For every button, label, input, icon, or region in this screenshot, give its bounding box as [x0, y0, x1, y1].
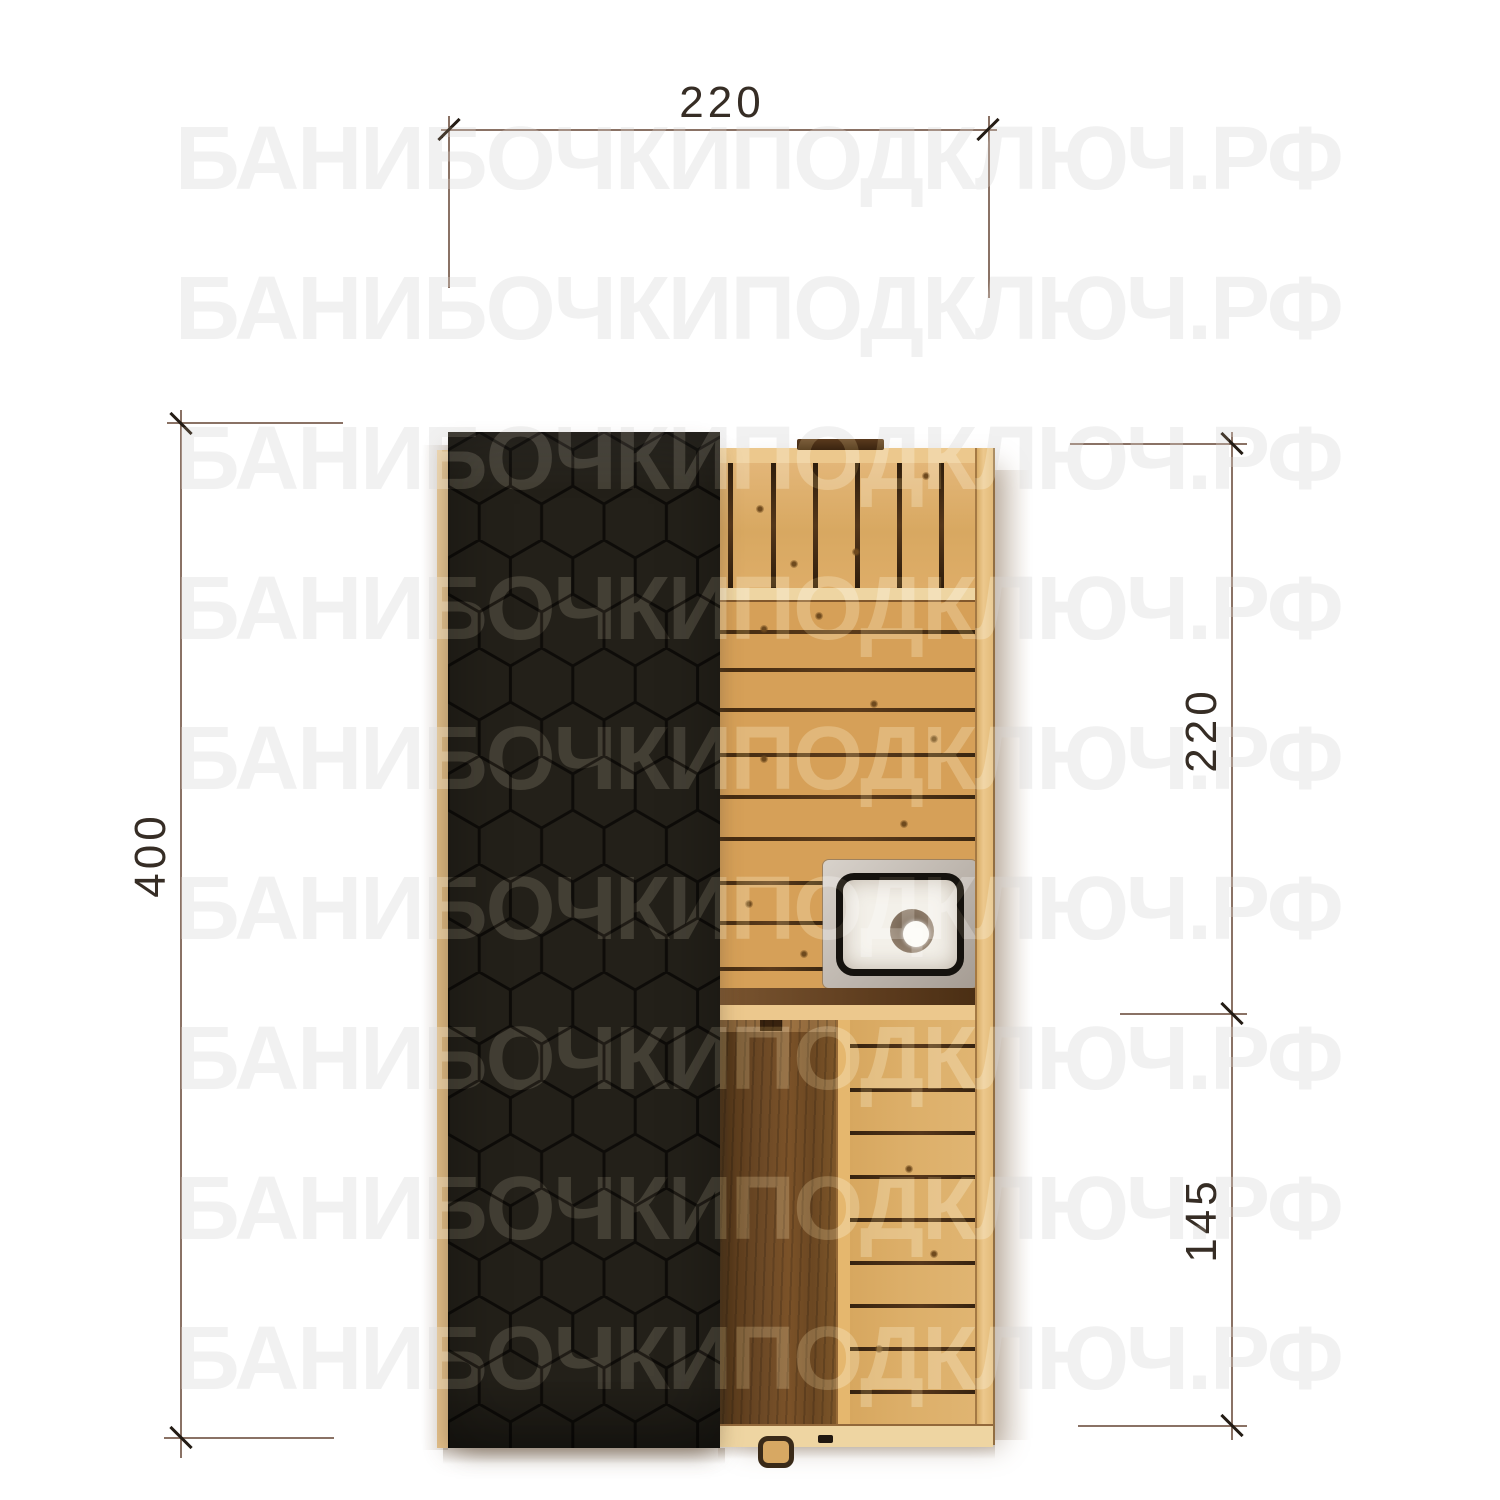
door-edge: [718, 1020, 836, 1032]
extension-line-top-right: [988, 116, 990, 298]
watermark-row: БАНИБОЧКИПОДКЛЮЧ.РФ: [175, 264, 1342, 354]
sink-drain: [890, 909, 934, 953]
dimension-line-left: [180, 410, 182, 1458]
wood-knot: [930, 735, 938, 743]
slat-gap: [939, 463, 944, 588]
slat-gap: [850, 1088, 978, 1092]
slat-gap: [850, 1261, 978, 1265]
slat-gap: [855, 463, 860, 588]
wood-knot: [760, 625, 768, 633]
lower-deck-slats: [850, 1020, 978, 1424]
wood-knot: [756, 505, 764, 513]
wood-knot: [815, 612, 823, 620]
wood-knot: [905, 1165, 913, 1173]
slat-gap: [850, 1044, 978, 1048]
sink-basin: [836, 873, 964, 976]
plank-gap: [718, 921, 823, 925]
plank-gap: [718, 795, 977, 799]
wood-knot: [790, 560, 798, 568]
building-shadow-right: [995, 470, 1031, 1440]
entry-door-top-view: [718, 1020, 836, 1424]
wood-knot: [930, 1250, 938, 1258]
slat-gap: [850, 1304, 978, 1308]
slat-gap: [850, 1175, 978, 1179]
door-hinge: [760, 1020, 782, 1031]
extension-line-left-top: [167, 422, 343, 424]
wood-knot: [875, 1345, 883, 1353]
dimension-label-left-height: 400: [126, 812, 176, 897]
right-wall: [975, 448, 993, 1445]
slat-gap: [850, 1218, 978, 1222]
sink: [823, 860, 977, 988]
wood-knot: [900, 820, 908, 828]
sink-drain-hole: [903, 921, 929, 947]
dimension-label-right-lower: 145: [1177, 1177, 1227, 1262]
wood-knot: [760, 755, 768, 763]
slat-gap: [850, 1347, 978, 1351]
wood-knot: [800, 950, 808, 958]
plank-gap: [718, 837, 977, 841]
slat-gap: [813, 463, 818, 588]
slat-gap: [728, 463, 733, 588]
dimension-line-top: [441, 129, 997, 131]
wood-knot: [922, 472, 930, 480]
plank-gap: [718, 967, 823, 971]
dimension-label-right-upper: 220: [1177, 687, 1227, 772]
wood-knot: [852, 548, 860, 556]
plank-gap: [718, 668, 977, 672]
wood-knot: [745, 900, 753, 908]
plank-gap: [718, 708, 977, 712]
extension-line-right-bottom: [1078, 1425, 1247, 1427]
plank-gap: [718, 881, 823, 885]
under-counter-band: [718, 988, 993, 1005]
extension-line-top-left: [448, 116, 450, 288]
dimension-line-right: [1231, 432, 1233, 1440]
bench-slats: [718, 463, 977, 588]
sauna-plan-canvas: БАНИБОЧКИПОДКЛЮЧ.РФБАНИБОЧКИПОДКЛЮЧ.РФБА…: [0, 0, 1500, 1500]
slat-gap: [850, 1131, 978, 1135]
extension-line-right-middle: [1120, 1013, 1247, 1015]
door-handle: [758, 1436, 794, 1468]
dimension-label-top-width: 220: [679, 78, 764, 128]
wood-knot: [870, 700, 878, 708]
vent-bar: [797, 439, 884, 450]
plank-gap: [718, 753, 977, 757]
slat-gap: [850, 1390, 978, 1394]
watermark-row: БАНИБОЧКИПОДКЛЮЧ.РФ: [175, 264, 1342, 354]
slat-gap: [897, 463, 902, 588]
extension-line-left-bottom: [164, 1437, 334, 1439]
interior-floor-plan: [718, 448, 995, 1445]
roof-shingles: [448, 432, 720, 1448]
plank-gap: [718, 630, 977, 634]
roof-shadow-bottom: [443, 1448, 725, 1464]
extension-line-right-top: [1070, 443, 1247, 445]
roof-shading: [448, 432, 720, 1448]
slat-gap: [771, 463, 776, 588]
door-stop: [818, 1435, 833, 1443]
